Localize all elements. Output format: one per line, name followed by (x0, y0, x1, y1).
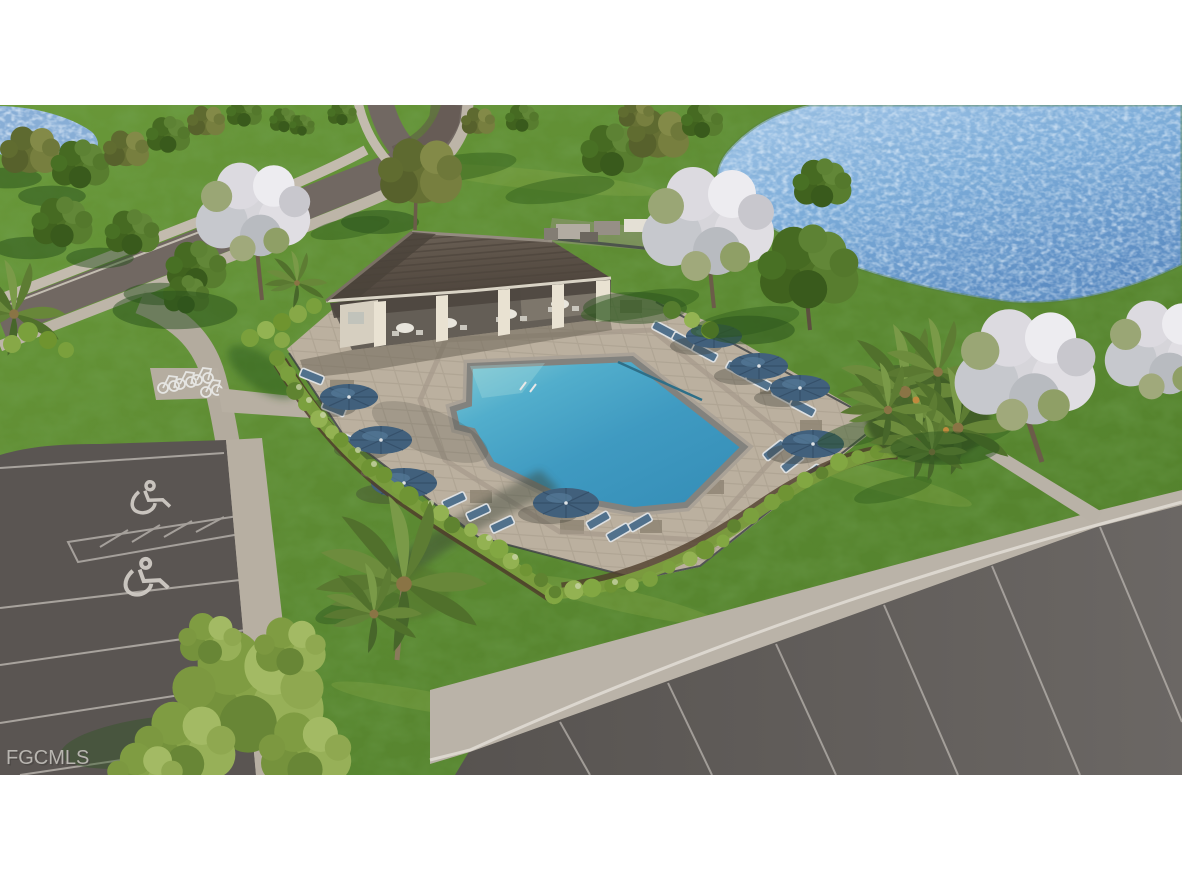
svg-text:FGCMLS: FGCMLS (6, 747, 89, 769)
